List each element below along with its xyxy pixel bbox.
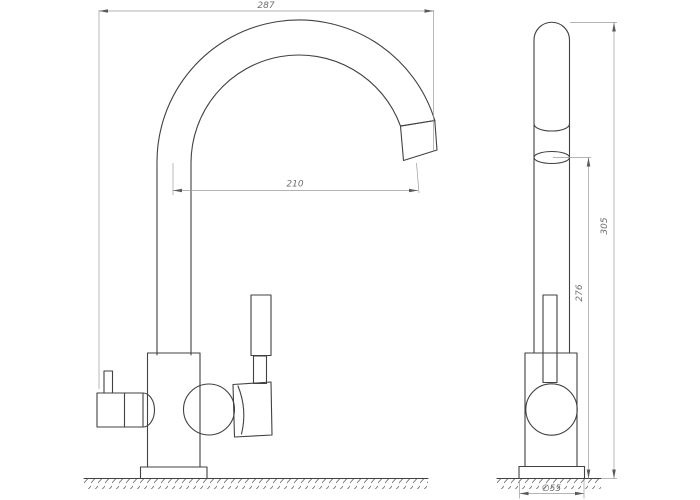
base-diameter-label: ∅55 bbox=[542, 484, 562, 494]
faucet-body-front bbox=[148, 353, 201, 467]
aerator-tip bbox=[401, 121, 438, 161]
base-front bbox=[141, 467, 208, 479]
ground-hatch-front bbox=[84, 479, 428, 490]
faucet-technical-drawing: 287 210 bbox=[0, 0, 700, 500]
side-view: 276 305 ∅55 bbox=[497, 22, 617, 498]
spout-reach-label: 210 bbox=[286, 180, 303, 190]
dimension-spout-reach: 210 bbox=[173, 163, 419, 195]
front-view: 287 210 bbox=[84, 1, 437, 489]
lever-handle-side bbox=[543, 295, 557, 383]
lever-handle-front bbox=[233, 295, 272, 437]
dimension-front-width: 287 bbox=[99, 1, 434, 389]
base-side bbox=[519, 467, 585, 479]
total-height-label: 305 bbox=[600, 217, 610, 234]
filter-valve bbox=[97, 371, 155, 427]
aerator-line-side bbox=[534, 124, 570, 131]
dimension-outlet-height: 276 bbox=[553, 158, 591, 479]
ball-joint-side bbox=[526, 384, 577, 435]
technical-drawing-canvas: 287 210 bbox=[0, 0, 700, 500]
spout-column-side bbox=[534, 22, 570, 353]
ball-joint-front bbox=[184, 384, 235, 435]
front-width-label: 287 bbox=[257, 1, 274, 11]
outlet-height-label: 276 bbox=[575, 284, 585, 301]
faucet-body-side bbox=[525, 353, 577, 467]
